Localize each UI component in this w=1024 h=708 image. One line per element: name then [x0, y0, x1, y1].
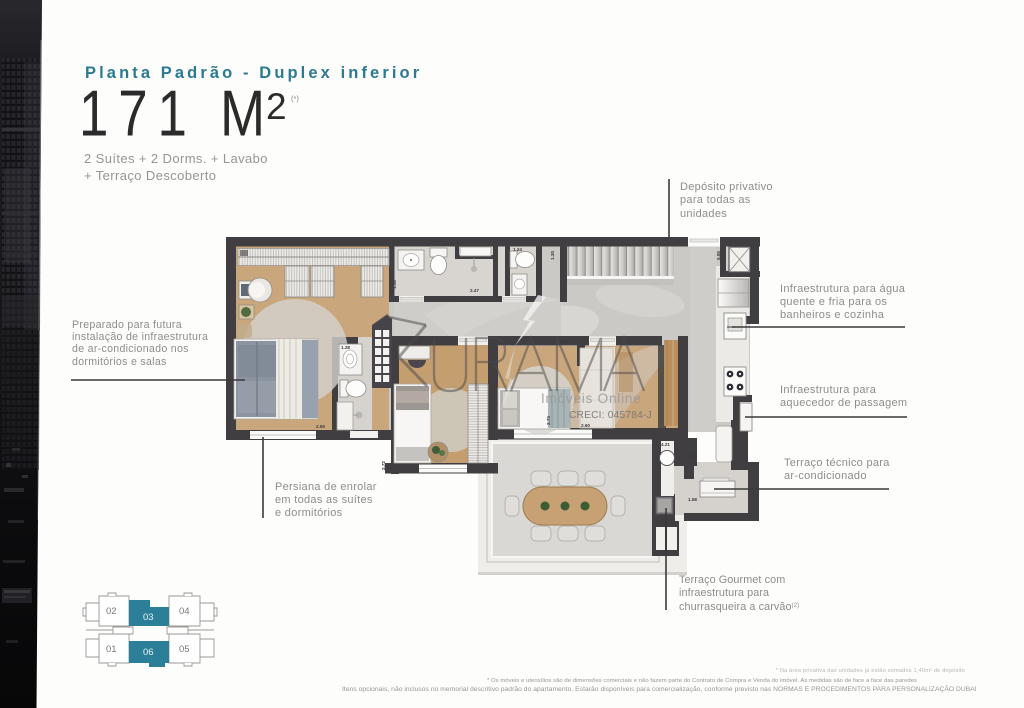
svg-text:Imóveis Online: Imóveis Online — [541, 391, 642, 406]
svg-text:05: 05 — [179, 644, 190, 655]
svg-text:02: 02 — [106, 606, 117, 617]
svg-text:1.30: 1.30 — [550, 251, 555, 260]
svg-text:2.73: 2.73 — [546, 416, 551, 425]
svg-text:1.30: 1.30 — [392, 280, 397, 289]
svg-text:5.86: 5.86 — [716, 251, 721, 260]
svg-text:CRECI: 045784-J: CRECI: 045784-J — [569, 410, 652, 421]
svg-text:01: 01 — [106, 644, 117, 655]
svg-text:3.60: 3.60 — [560, 339, 569, 344]
svg-text:1.28: 1.28 — [341, 345, 350, 350]
svg-text:03: 03 — [143, 612, 154, 623]
svg-text:2.60: 2.60 — [581, 423, 590, 428]
svg-text:06: 06 — [143, 647, 154, 658]
svg-text:1.60: 1.60 — [688, 454, 697, 459]
svg-text:2.50: 2.50 — [316, 424, 325, 429]
svg-text:4.21: 4.21 — [661, 442, 670, 447]
svg-text:04: 04 — [179, 606, 190, 617]
svg-text:1.58: 1.58 — [688, 497, 697, 502]
svg-text:2.72: 2.72 — [381, 461, 386, 470]
svg-text:2.47: 2.47 — [470, 288, 479, 293]
svg-text:1.24: 1.24 — [513, 247, 522, 252]
